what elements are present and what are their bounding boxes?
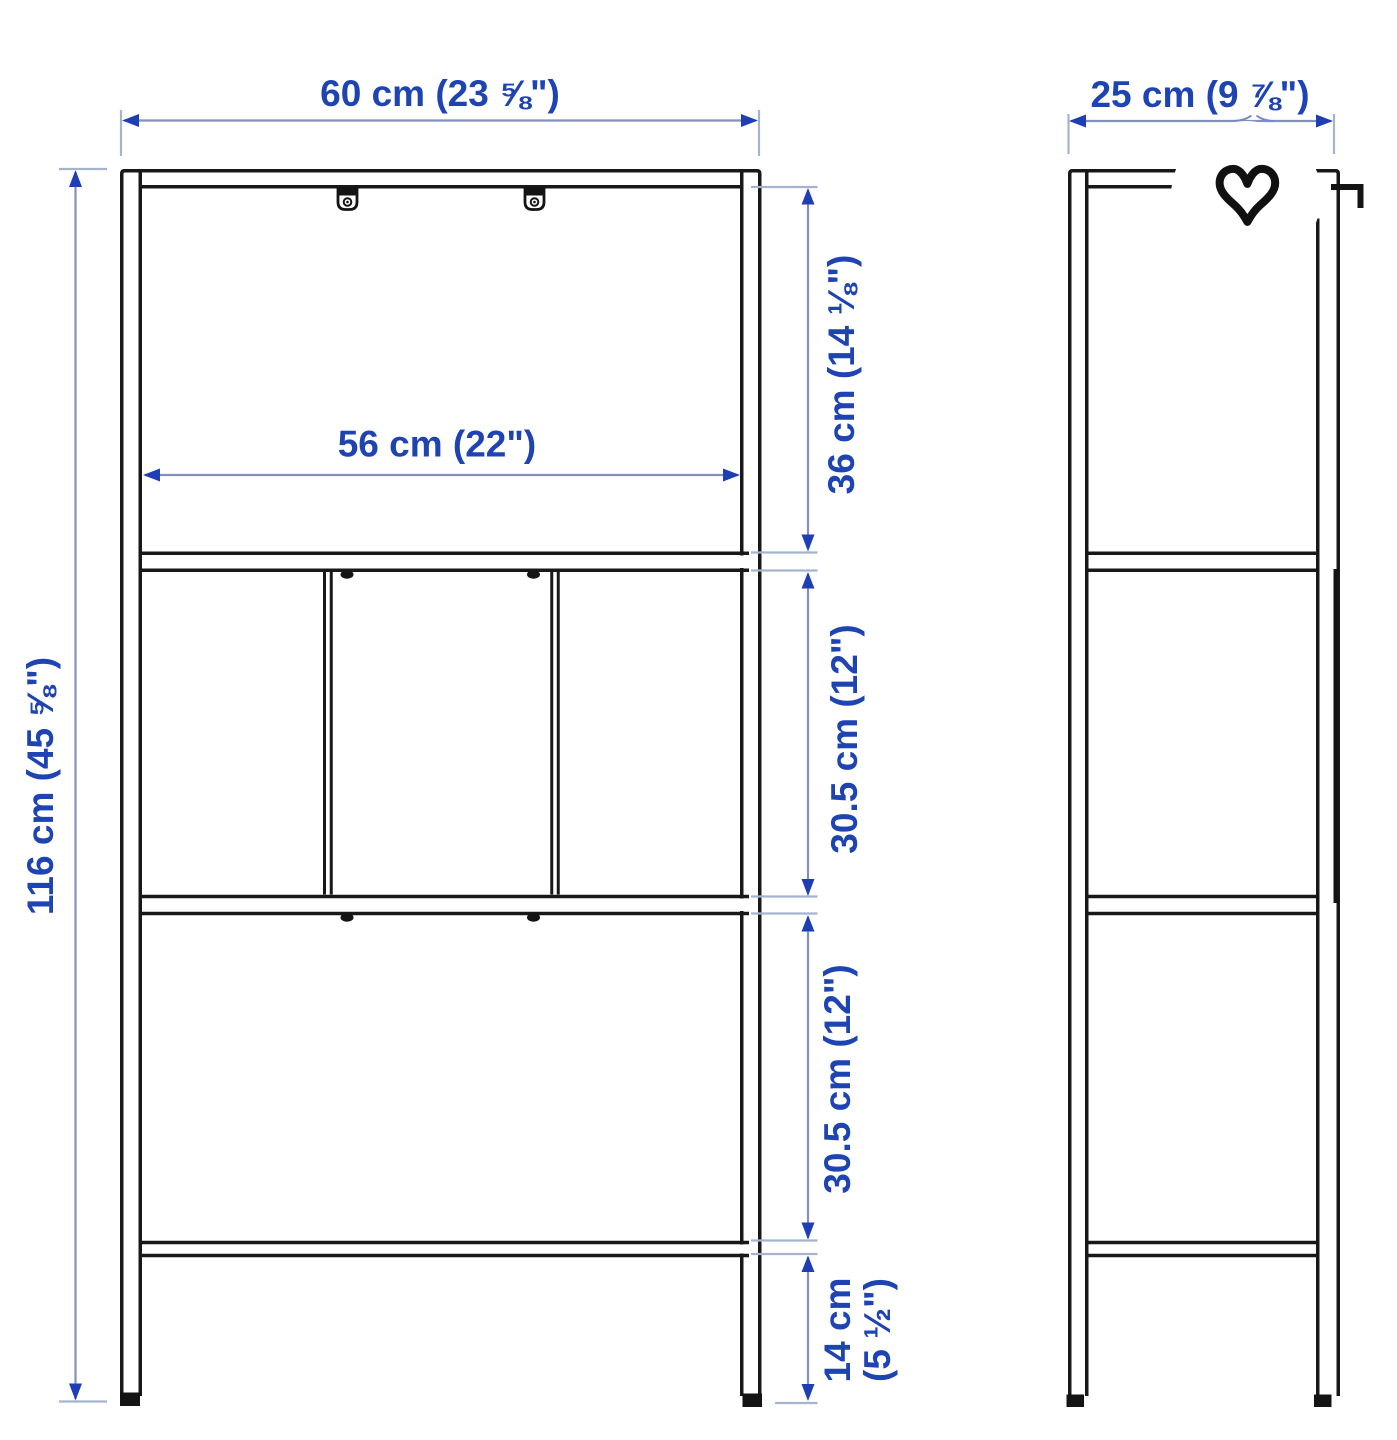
svg-text:60 cm (23 ⅝"): 60 cm (23 ⅝") (320, 73, 560, 114)
svg-text:56 cm (22"): 56 cm (22") (338, 424, 537, 465)
svg-text:25 cm (9 ⅞"): 25 cm (9 ⅞") (1090, 74, 1309, 115)
svg-text:30.5 cm (12"): 30.5 cm (12") (817, 964, 858, 1193)
svg-text:116 cm (45 ⅝"): 116 cm (45 ⅝") (20, 657, 61, 915)
svg-text:14 cm: 14 cm (817, 1278, 858, 1383)
svg-text:(5 ½"): (5 ½") (857, 1278, 898, 1382)
svg-text:36 cm (14 ⅛"): 36 cm (14 ⅛") (821, 255, 862, 495)
svg-text:30.5 cm (12"): 30.5 cm (12") (824, 624, 865, 853)
